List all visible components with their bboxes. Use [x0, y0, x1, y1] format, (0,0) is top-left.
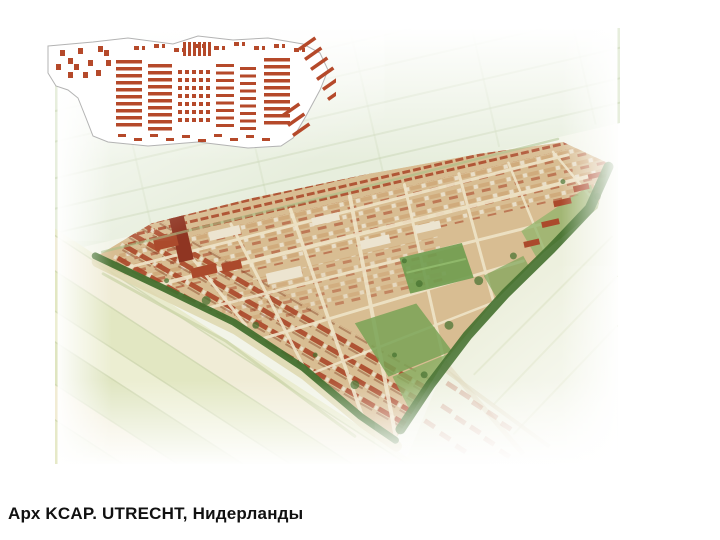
site-plan-canvas — [46, 34, 336, 156]
caption: Арх KCAP. UTRECHT, Нидерланды — [8, 504, 303, 524]
presentation-slide: Арх KCAP. UTRECHT, Нидерланды — [0, 0, 720, 540]
site-plan-inset — [46, 34, 336, 156]
